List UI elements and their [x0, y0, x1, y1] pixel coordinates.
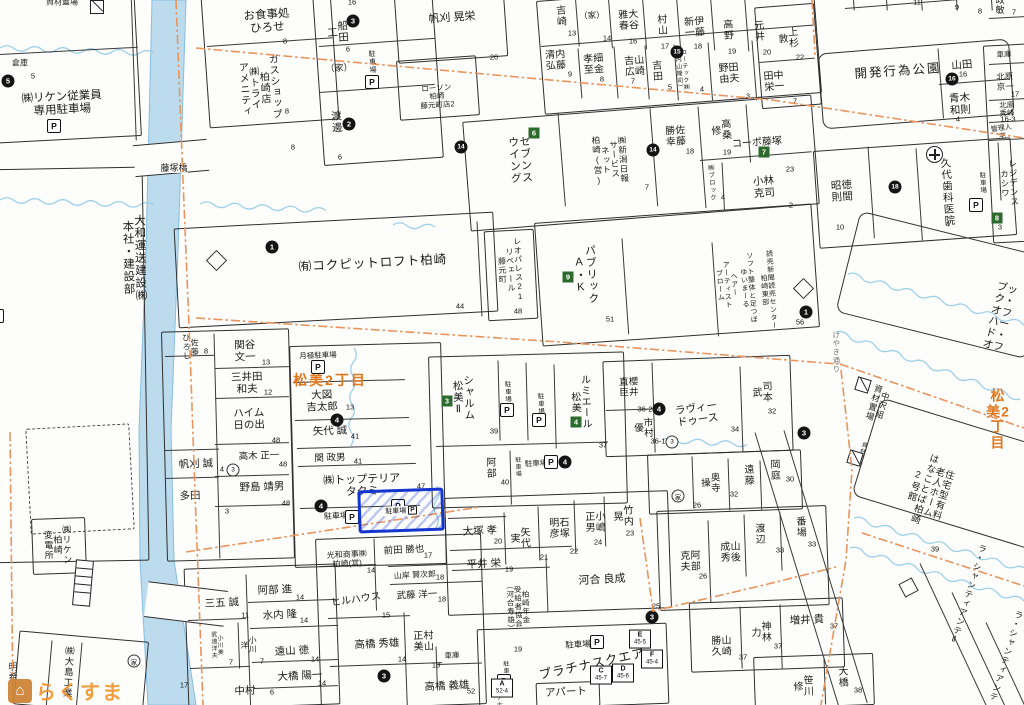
parcel-number: 22	[570, 547, 578, 555]
parcel-number: 18	[436, 573, 444, 581]
parcel-number: 23	[626, 529, 634, 537]
parcel-number: 16	[629, 37, 637, 45]
parcel-label: 吉田	[649, 60, 661, 83]
parcel-number: 33	[808, 540, 816, 548]
parcel-label: パブリックA・K	[572, 244, 599, 305]
parcel-label: 水内 隆	[263, 609, 298, 623]
label-column: 小川	[248, 636, 257, 654]
block-number-marker: 3	[347, 15, 360, 28]
label-column: けやき通り	[832, 331, 840, 374]
parcel-label: 中村	[234, 686, 256, 699]
parcel-number: 48	[514, 307, 522, 315]
parcel	[0, 0, 142, 144]
label-column: 駐車場	[977, 172, 985, 195]
parking-icon: P	[47, 119, 61, 133]
parcel-number: 36-2	[637, 405, 652, 413]
parcel-number: 38	[854, 686, 862, 694]
parcel-label: 大図 吉太郎	[306, 390, 338, 415]
parcel-number: 33	[776, 546, 784, 554]
parcel-number: 18	[432, 661, 440, 669]
unit-letter: E	[631, 632, 649, 640]
parcel-number: 13	[568, 29, 576, 37]
parcel-number: 4	[220, 465, 224, 473]
parcel-line	[991, 0, 993, 10]
parcel-label: 三五 誠	[205, 597, 240, 611]
parcel-number: 39	[931, 545, 939, 553]
material-yard-icon	[854, 376, 871, 393]
parcel-label: 岡庭	[768, 459, 779, 481]
building-badge: 4	[571, 417, 582, 428]
parcel-number: 7	[793, 97, 797, 105]
parcel-number: 11	[913, 0, 921, 6]
parcel-label: 竹内晃	[610, 505, 631, 528]
parcel-label: ラ・シャンティアンテⅡ	[948, 543, 987, 647]
parcel-number: 25	[652, 602, 660, 610]
parcel-label: お食事処 ひろせ	[243, 8, 291, 37]
parking-icon: P	[500, 403, 514, 417]
block-number-marker: 5	[2, 75, 15, 88]
parcel-label: 駐車場	[502, 381, 509, 404]
parcel-number: 14	[300, 616, 308, 624]
parcel-label: 車庫	[444, 651, 459, 660]
circle-marker: 3	[227, 464, 240, 477]
parcel-number: 9	[955, 3, 959, 11]
parcel-number: 20	[494, 537, 502, 545]
parcel-label: 上杉敦	[775, 26, 797, 49]
parcel-label: 吉崎	[553, 5, 565, 28]
parcel-line	[886, 0, 888, 10]
parcel-number: 19	[505, 565, 513, 573]
parcel-number: 3	[225, 507, 229, 515]
parcel-number: 41	[351, 432, 359, 440]
label-column: 阿部	[688, 550, 699, 572]
parcel-number: 14	[398, 655, 406, 663]
parcel-label: シャルム松美Ⅱ	[452, 375, 475, 422]
parcel-label: レジデンスカシワ	[999, 159, 1019, 207]
parcel-label: 市村優	[632, 417, 652, 439]
parcel-label: 山崎勝久	[708, 635, 729, 658]
boundary-channel-se	[862, 533, 1024, 586]
label-column: 吉田	[649, 60, 661, 83]
parcel-label: 大和運送建設㈱本社・建設部	[121, 214, 146, 302]
parcel-label: 駐車場	[535, 393, 542, 416]
label-column: 伊藤	[691, 15, 703, 38]
parcel-number: 14	[296, 593, 304, 601]
watermark-text: らくすま	[36, 676, 124, 705]
parcel-label: 野島 靖男	[239, 481, 284, 494]
block-number-marker: 18	[889, 181, 902, 194]
parcel-number: 14	[603, 34, 611, 42]
parcel-number: 8	[285, 107, 289, 115]
parcel-label: レオパレス21リベェール藤元町	[496, 237, 524, 303]
parcel-label: 高野	[720, 19, 732, 42]
parcel-number: 18	[694, 42, 702, 50]
parcel-number: 19	[728, 47, 736, 55]
parcel-label: 佐藤ひろし	[181, 333, 198, 361]
parcel-label: （家）	[579, 10, 605, 21]
parcel-label: 石塚明彦	[546, 517, 567, 540]
parcel-label: 倉庫	[12, 60, 28, 69]
parcel-line	[989, 16, 1024, 19]
parcel-label: アパート	[545, 686, 587, 700]
label-column: 駐車場	[535, 393, 542, 416]
label-column: ㈱リケン	[61, 525, 72, 565]
label-column: 上杉	[785, 26, 797, 49]
parcel-label: 司本武	[749, 381, 770, 404]
parcel-label: 青木 和則	[949, 93, 972, 118]
parcel-label: 村山	[654, 14, 666, 37]
block-number-marker: 4	[315, 500, 328, 513]
circle-marker: 3	[666, 436, 679, 449]
parcel-number: 13	[346, 403, 354, 411]
parcel-number: 14	[367, 566, 375, 574]
parcel-number: 8	[283, 37, 287, 45]
parcel-number: 7	[1012, 8, 1016, 16]
parcel-label: ㈱新潟日報サービスネット柏崎(営)	[591, 134, 629, 187]
label-column: 山崎	[631, 54, 643, 77]
label-column: 山崎	[719, 635, 730, 657]
parcel-number: 37	[599, 441, 607, 449]
unit-badge: E45-5	[629, 630, 651, 649]
parcel-label: 小川洋	[240, 636, 257, 655]
parcel-label: 内藤清弘	[542, 48, 564, 71]
label-column: 笹川	[801, 675, 812, 697]
parcel-number: 7	[260, 657, 264, 665]
parcel-number: 2	[789, 201, 793, 209]
parcel-number: 19	[723, 148, 731, 156]
parcel-number: 36-1	[650, 437, 665, 445]
parcel-label: 政敏	[994, 0, 1003, 15]
parcel-label: ㈱リケン柏崎変電所	[43, 525, 72, 566]
parcel-label: 小川美武道洋夫	[209, 631, 222, 659]
parcel-number: 40	[501, 478, 509, 486]
unit-letter: C	[592, 668, 610, 676]
label-column: 駐車場	[502, 381, 509, 404]
label-column: 吉崎	[553, 5, 565, 28]
parking-icon: P	[365, 75, 379, 89]
parcel-number: 6	[346, 45, 350, 53]
highlighted-parcel-label: 駐車場	[385, 505, 406, 516]
label-column: 矢代	[518, 527, 529, 549]
parcel-label: 山後成秀	[717, 541, 738, 564]
label-column: 村山	[654, 14, 666, 37]
building-badge: 9	[563, 272, 574, 283]
parking-icon: P	[0, 309, 4, 323]
parcel-number: 8	[978, 7, 982, 15]
parcel-number: 26	[699, 572, 707, 580]
parcel-label: 佐藤勝幸	[662, 124, 684, 147]
parcel-number: 37	[739, 653, 747, 661]
parcel-label: 船田工	[326, 20, 349, 44]
parking-icon: P	[345, 510, 359, 524]
parcel-number: 52	[467, 687, 475, 695]
parcel-number: 48	[282, 499, 290, 507]
parcel-number: 48	[272, 436, 280, 444]
water-edge-wave	[849, 546, 1024, 604]
parcel	[161, 328, 295, 561]
label-column: 竹内	[621, 505, 632, 527]
parcel-label: ヘアーアーティストブローム	[715, 260, 740, 309]
watermark-home-icon: ⌂	[8, 679, 32, 703]
parcel-number: 3	[998, 223, 1002, 231]
label-column: 石塚	[557, 517, 568, 539]
parcel-number: 11	[241, 611, 249, 619]
parcel-number: 19	[514, 645, 522, 653]
label-column: 番場	[794, 516, 805, 538]
parcel-label: 神林力	[748, 621, 769, 644]
parcel	[25, 423, 134, 534]
parcel-number: 4	[700, 85, 704, 93]
parcel	[753, 653, 875, 705]
parcel-label: 河合 良成	[578, 573, 626, 588]
unit-letter: F	[643, 652, 661, 660]
block-number-marker: 16	[946, 73, 959, 86]
block-number-marker: 4	[331, 414, 344, 427]
parcel-number: 34	[731, 425, 739, 433]
parcel-label: 高木 正一	[239, 451, 280, 463]
parcel-number: 5	[31, 72, 35, 80]
steps-icon	[72, 559, 94, 606]
label-column: ラ・シャンティアンテⅡ	[948, 543, 987, 647]
parcel-number: 32	[730, 490, 738, 498]
unit-letter: A	[493, 681, 511, 689]
label-column: 渡邊	[330, 110, 342, 134]
parcel-label: 阿部	[484, 457, 495, 479]
parcel-number: 17	[1011, 90, 1019, 98]
label-column: 神林	[759, 621, 770, 643]
unit-badge: D45-6	[612, 664, 634, 683]
parcel-label: 村山正美	[410, 630, 431, 653]
parcel-number: 44	[456, 302, 464, 310]
parcel-number: 7	[229, 658, 233, 666]
parcel-number: 17	[180, 681, 188, 689]
label-column: 徳間	[840, 179, 852, 203]
parcel-number: 17	[661, 42, 669, 50]
parcel-number: 18	[438, 595, 446, 603]
parcel-label: 松美2丁目	[985, 389, 1011, 452]
block-number-marker: 1	[800, 306, 813, 319]
parcel-label: 光和商事㈱ 柏崎(営)	[327, 550, 368, 570]
landuse-diamond-icon	[898, 577, 918, 597]
building-badge: 6	[529, 128, 540, 139]
house-circle-marker: 家	[128, 655, 141, 668]
highlighted-parcel-tag: 駐車場 P	[383, 505, 419, 516]
label-column: 高野	[720, 19, 732, 42]
block-number-marker: 2	[343, 118, 356, 131]
parcel-label: 多田	[179, 491, 200, 503]
parcel-number: 16	[348, 0, 356, 6]
label-column: 内藤	[552, 48, 564, 71]
label-column: 小嶋	[593, 511, 604, 533]
label-column: レジデンス	[1008, 159, 1019, 207]
parcel-label: 松美2丁目	[293, 373, 367, 389]
parcel-number: 8	[204, 347, 208, 355]
water-edge-wave	[200, 202, 326, 214]
parcel-number: 17	[424, 551, 432, 559]
label-column: 大谷	[625, 8, 637, 31]
label-column: 佐藤	[672, 124, 684, 147]
building-badge: 8	[992, 213, 1003, 224]
parcel-line	[845, 0, 1013, 9]
parcel-label: 阿部 進	[258, 584, 293, 598]
block-number-marker: 3	[798, 427, 811, 440]
label-column: 村山	[421, 630, 432, 652]
parcel-number: 9	[568, 70, 572, 78]
label-column: 小川美	[216, 631, 223, 659]
parcel-number: 13	[262, 358, 270, 366]
building-badge: 3	[442, 396, 453, 407]
label-column: シャルム	[462, 375, 474, 421]
parcel-number: 20	[490, 53, 498, 61]
parcel-number: 10	[836, 223, 844, 231]
parcel-number: 4	[956, 115, 960, 123]
parcel-number: 15	[382, 611, 390, 619]
block-number-marker: 1	[266, 241, 279, 254]
parcel-number: 14	[318, 679, 326, 687]
label-column: 奥寺	[709, 472, 719, 493]
parcel-number: 4	[721, 193, 725, 201]
label-column: 細金	[590, 52, 602, 75]
parcel-label: 前田 勝也	[383, 545, 424, 558]
label-column: 遠藤	[742, 464, 753, 486]
parcel-line	[853, 0, 855, 10]
parcel-number: 56	[796, 318, 804, 326]
parking-icon: P	[408, 505, 417, 514]
parcel-label: 小林 克司	[753, 176, 776, 201]
parcel-label: 細金孝至	[580, 52, 602, 75]
parcel-number: 6	[270, 688, 274, 696]
label-column: 駐車場	[514, 456, 521, 477]
parcel-label: 柏崎年金受給者協会（河合寿雄）	[506, 581, 531, 633]
parcel-label: ㈱ブロック	[705, 164, 714, 202]
parcel-number: 12	[264, 388, 272, 396]
parcel-label: 小嶋正男	[582, 511, 603, 534]
parcel-label: 大橋	[836, 666, 847, 688]
parking-icon: P	[532, 413, 546, 427]
parking-icon: P	[311, 360, 325, 374]
parcel-label: 徳間昭則	[830, 179, 853, 203]
unit-badge: F45-4	[641, 650, 663, 669]
parcel-label: 高橋 秀雄	[354, 638, 399, 652]
parking-icon: P	[544, 455, 558, 469]
unit-letter: D	[614, 666, 632, 674]
parcel-label: 奥寺操	[699, 472, 719, 494]
parcel-label: 三井田 和夫	[231, 372, 263, 397]
parcel-label: 駐車場	[565, 640, 591, 651]
parking-icon: P	[590, 635, 604, 649]
parcel-label: 増井 貴	[790, 614, 825, 628]
parcel-label: 渡邊	[330, 110, 342, 134]
parcel	[647, 449, 803, 514]
parcel-number: 16	[959, 70, 967, 78]
parcel-label: 矢代実	[507, 527, 528, 550]
parcel-number: 5	[668, 83, 672, 91]
parcel-label: 大橋 陽一	[277, 670, 322, 684]
parcel-label: 山崎吉広	[621, 54, 643, 77]
parcel-label: 駐車場	[977, 172, 985, 195]
parcel-number: 48	[279, 460, 287, 468]
parcel-label: セブンスウイング	[506, 135, 532, 184]
block-number-marker: 3	[646, 611, 659, 624]
parcel-label: 田中 栄一	[763, 70, 785, 94]
parcel-label: 渡辺	[753, 523, 764, 545]
parcel-label: 伊藤新一	[681, 15, 703, 38]
parcel-label: 元井	[751, 20, 763, 43]
building-badge: 7	[759, 147, 770, 158]
parcel-label: 平井 栄	[467, 558, 502, 572]
parcel-label: ハイム 日の出	[233, 408, 265, 433]
parcel-label: 資材置場	[46, 0, 78, 7]
unit-badge: C45-7	[590, 666, 612, 685]
block-number-marker: 15	[671, 46, 684, 59]
label-column: 大橋	[836, 666, 847, 688]
label-column: 櫻井	[627, 376, 637, 397]
block-number-marker: 14	[455, 141, 468, 154]
parcel-label: 番場	[794, 516, 805, 538]
label-column: 大和運送建設㈱	[132, 214, 145, 302]
parcel-label: 大谷雅春	[615, 8, 637, 31]
unit-badge: A52-4	[491, 679, 513, 698]
label-column: 元井	[751, 20, 763, 43]
parcel-number: 8	[600, 75, 604, 83]
label-column: ㈱ブロック	[705, 164, 714, 202]
parcel-label: 関 政男	[314, 453, 345, 465]
parcel-number: 14	[311, 655, 319, 663]
parcel-number: 8	[291, 143, 295, 151]
parcel-label: （家）	[325, 62, 353, 74]
parcel-number: 23	[786, 165, 794, 173]
parcel-label: 高桑修	[708, 118, 730, 141]
parcel-number: 26	[693, 501, 701, 509]
parcel-number: 21	[540, 553, 548, 561]
parcel-number: 18	[686, 147, 694, 155]
parcel-number: 37	[774, 642, 782, 650]
parcel-label: けやき通り	[832, 331, 840, 374]
house-circle-marker: 家	[672, 490, 685, 503]
block-number-marker: 14	[647, 144, 660, 157]
parcel-number: 30	[786, 475, 794, 483]
parcel-label: 高橋 義雄	[424, 680, 469, 694]
label-column: 政敏	[994, 0, 1003, 15]
parcel-number: 22	[796, 53, 804, 61]
parcel-label: 帆刈 誠	[179, 459, 214, 472]
parcel-label: ㈱リケン従業員 専用駐車場	[21, 89, 102, 119]
label-column: 高桑	[718, 118, 730, 141]
parcel-number: 37	[830, 622, 838, 630]
parcel-number: 51	[606, 315, 614, 323]
label-column: 岡庭	[768, 459, 779, 481]
parking-icon: P	[969, 198, 983, 212]
parcel-number: 39	[490, 427, 498, 435]
parcel-number: 7	[645, 183, 649, 191]
parcel-number: 7	[631, 77, 635, 85]
parcel-number: 20	[763, 48, 771, 56]
label-column: 阿部	[484, 457, 495, 479]
parcel-label: 藤塚橋	[160, 163, 187, 173]
parcel-label: 遠藤	[742, 464, 753, 486]
parcel-label: 武藤 洋一	[396, 590, 437, 603]
parcel-label: ガスショップ柏崎店㈱トライアメニティ	[235, 54, 280, 123]
parcel-label: 櫻井直臣	[617, 376, 637, 398]
parcel-number: 6	[338, 153, 342, 161]
highlighted-parcel[interactable]: 駐車場 P	[357, 488, 444, 534]
parcel-label: 駐車場	[514, 456, 521, 477]
parcel-label: 車庫	[996, 50, 1011, 59]
parcel-label: 管理人宅	[990, 124, 1014, 143]
parcel-label: 矢代 誠	[313, 426, 348, 439]
label-column: 山後	[728, 541, 739, 563]
material-yard-icon	[90, 0, 104, 14]
